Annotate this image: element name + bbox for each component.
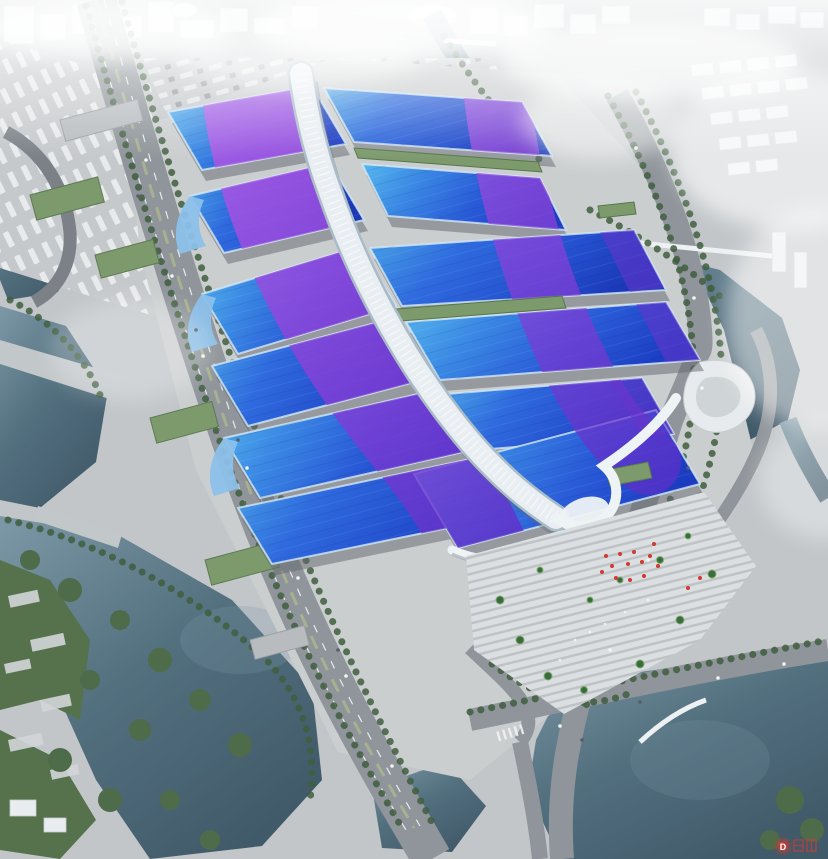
park-pavilion [10,800,36,816]
aerial-rendering-exhibition-center: D [0,0,828,859]
park-pavilion [44,818,66,832]
scene-canvas: D [0,0,828,859]
watermark-letter: D [780,842,787,852]
haze-top-gradient [0,0,828,160]
